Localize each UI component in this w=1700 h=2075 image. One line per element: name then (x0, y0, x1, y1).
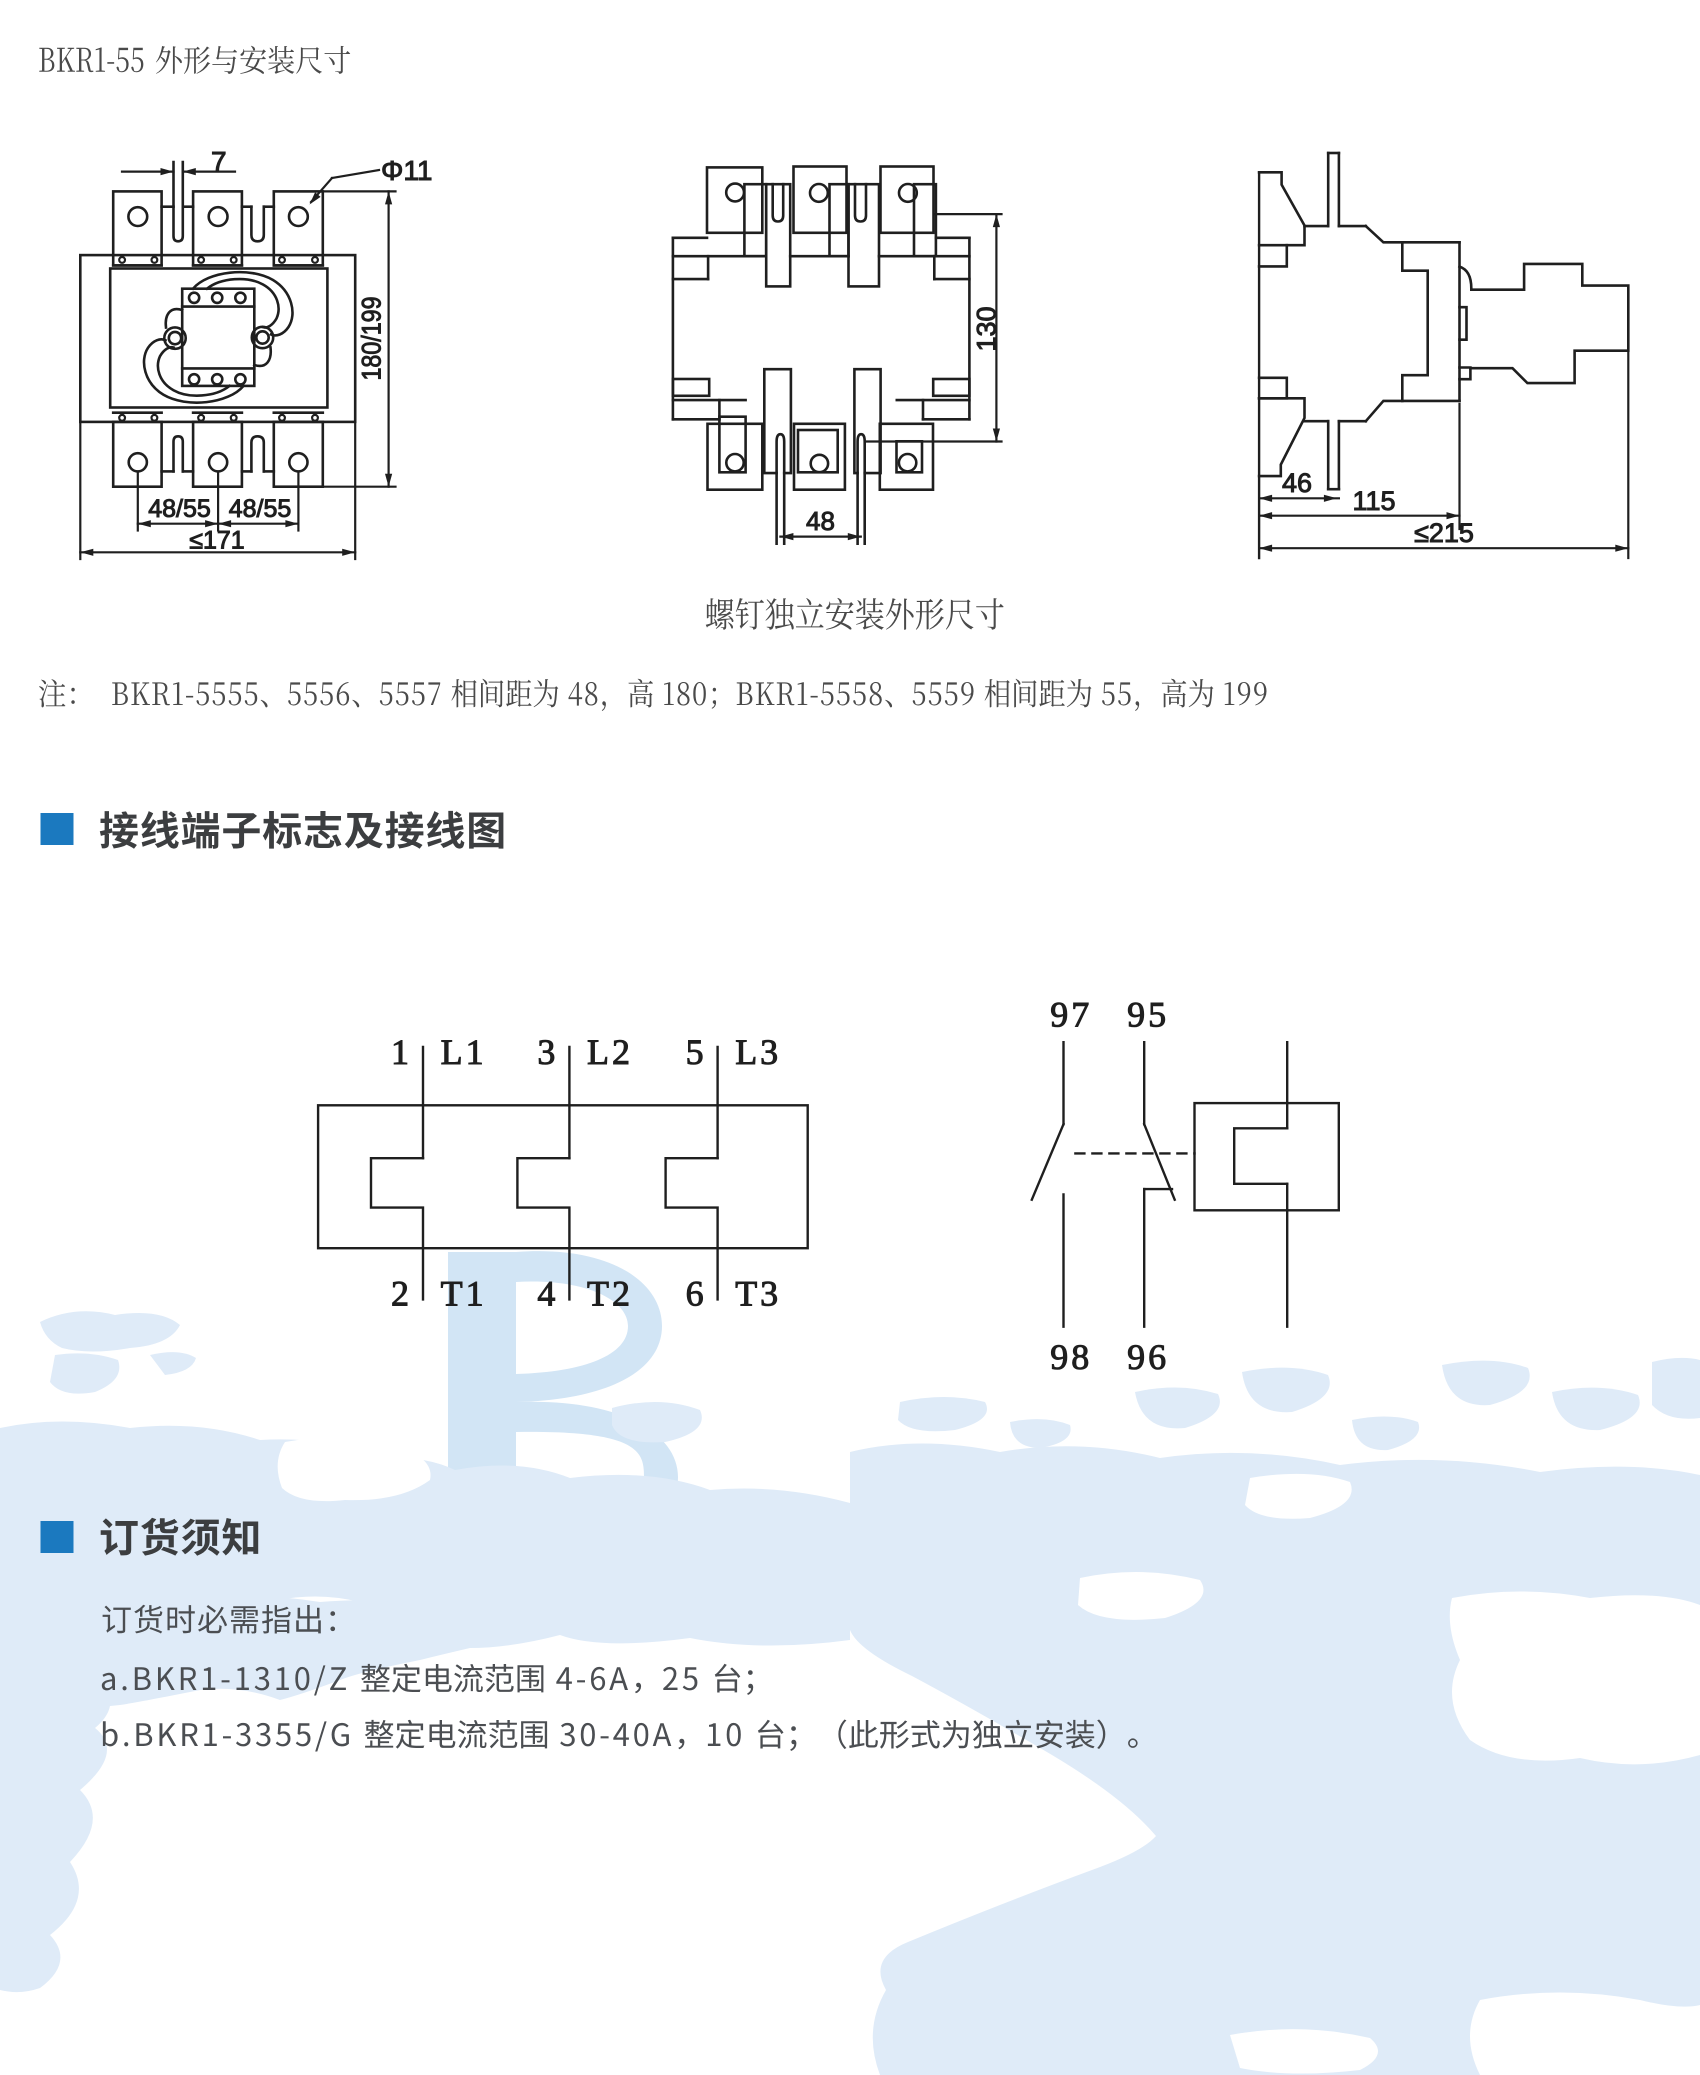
svg-text:≤171: ≤171 (189, 527, 244, 555)
svg-text:L1: L1 (441, 1032, 487, 1072)
svg-text:5: 5 (686, 1032, 704, 1072)
svg-text:96: 96 (1127, 1337, 1169, 1377)
svg-text:L2: L2 (587, 1032, 633, 1072)
svg-text:46: 46 (1282, 468, 1312, 498)
svg-text:2: 2 (391, 1274, 409, 1314)
svg-text:4: 4 (537, 1274, 555, 1314)
svg-text:≤215: ≤215 (1414, 518, 1474, 548)
svg-text:L3: L3 (735, 1032, 781, 1072)
svg-text:48/55: 48/55 (229, 495, 292, 523)
svg-text:180/199: 180/199 (357, 297, 387, 381)
svg-text:115: 115 (1352, 486, 1395, 516)
svg-text:T1: T1 (441, 1274, 487, 1314)
svg-text:95: 95 (1127, 994, 1169, 1034)
svg-text:Φ11: Φ11 (381, 155, 432, 186)
svg-text:T2: T2 (587, 1274, 633, 1314)
svg-text:1: 1 (391, 1032, 409, 1072)
svg-text:130: 130 (972, 306, 1002, 351)
svg-text:T3: T3 (735, 1274, 781, 1314)
svg-text:6: 6 (686, 1274, 704, 1314)
svg-text:97: 97 (1050, 994, 1092, 1034)
svg-text:48/55: 48/55 (148, 495, 211, 523)
svg-text:7: 7 (211, 146, 227, 177)
svg-text:48: 48 (806, 506, 835, 536)
svg-text:3: 3 (537, 1032, 555, 1072)
svg-text:98: 98 (1050, 1337, 1092, 1377)
